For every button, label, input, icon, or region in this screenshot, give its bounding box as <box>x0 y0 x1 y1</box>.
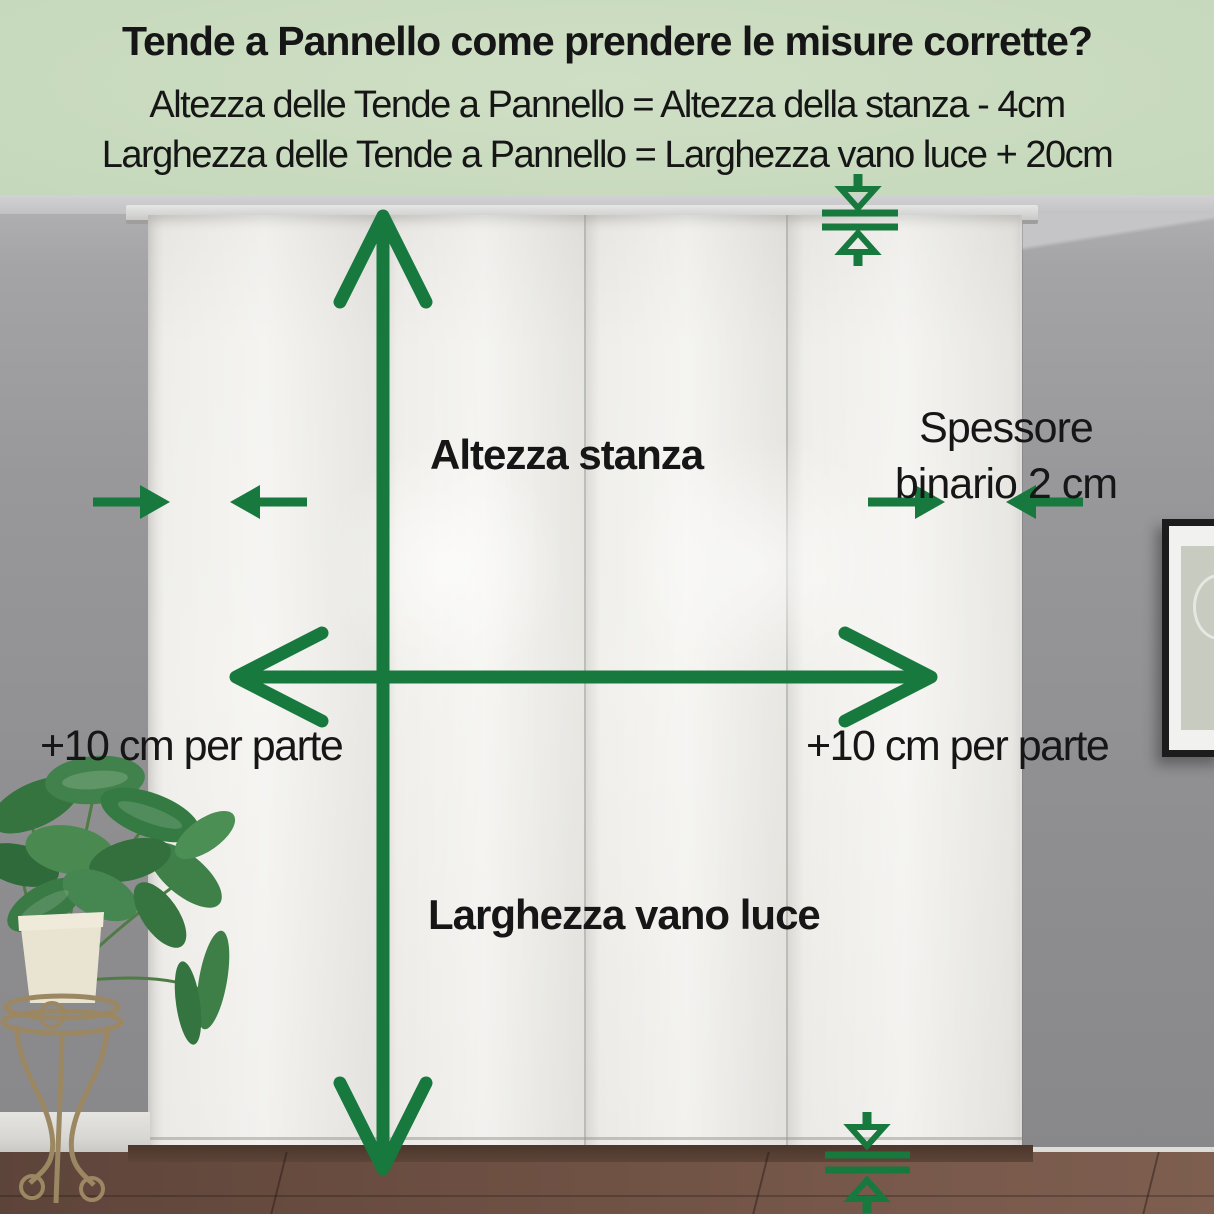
room-height-label: Altezza stanza <box>430 431 703 479</box>
potted-plant <box>0 745 240 1214</box>
side-allowance-left-label: +10 cm per parte <box>40 722 342 771</box>
curtain-panel <box>786 215 1020 1153</box>
width-formula-text: Larghezza delle Tende a Pannello = Largh… <box>0 134 1214 177</box>
curtain-hem-line <box>148 1137 1022 1140</box>
curtain-panel <box>381 215 584 1153</box>
picture-frame <box>1162 519 1214 757</box>
plant-stand <box>3 996 121 1203</box>
track-thickness-line1: Spessore <box>878 400 1134 456</box>
frame-mat <box>1169 526 1214 750</box>
height-formula-text: Altezza delle Tende a Pannello = Altezza… <box>0 84 1214 127</box>
header-band: Tende a Pannello come prendere le misure… <box>0 0 1214 195</box>
room-photo <box>0 195 1214 1214</box>
circle-line-art <box>1193 574 1214 640</box>
track-thickness-label: Spessore binario 2 cm <box>878 400 1134 512</box>
page-title: Tende a Pannello come prendere le misure… <box>0 18 1214 65</box>
opening-width-label: Larghezza vano luce <box>428 891 820 939</box>
panel-curtains <box>148 215 1022 1153</box>
track-thickness-line2: binario 2 cm <box>878 456 1134 512</box>
floor-shadow-strip <box>128 1145 1033 1162</box>
frame-artwork <box>1181 546 1214 730</box>
side-allowance-right-label: +10 cm per parte <box>806 722 1108 771</box>
ceiling-edge-right <box>1022 213 1214 259</box>
curtain-panel <box>584 215 786 1153</box>
curtain-measurement-infographic: Tende a Pannello come prendere le misure… <box>0 0 1214 1214</box>
